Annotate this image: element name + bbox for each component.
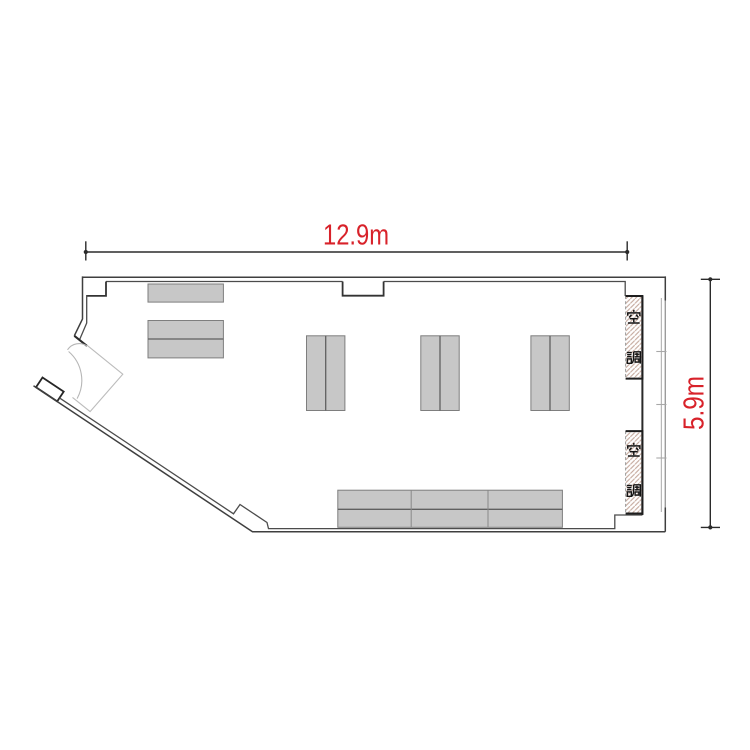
svg-text:12.9m: 12.9m — [323, 220, 389, 252]
svg-text:5.9m: 5.9m — [679, 376, 711, 430]
